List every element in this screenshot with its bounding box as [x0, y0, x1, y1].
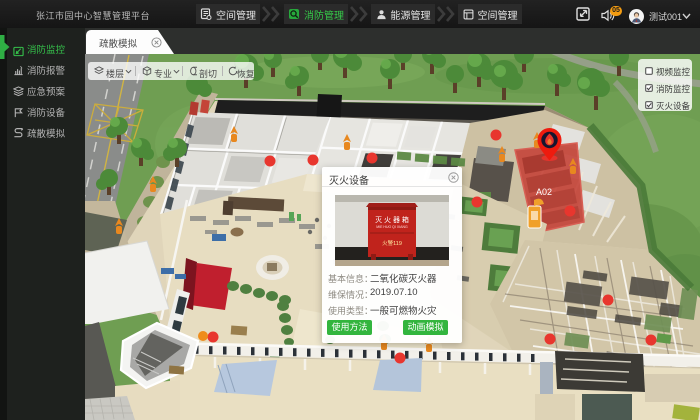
svg-text:火警119: 火警119: [382, 239, 402, 247]
svg-text:A02: A02: [536, 187, 552, 197]
svg-text:MIE HUO QI XIANG: MIE HUO QI XIANG: [376, 225, 408, 229]
svg-text:灭 火 器 箱: 灭 火 器 箱: [375, 215, 409, 224]
